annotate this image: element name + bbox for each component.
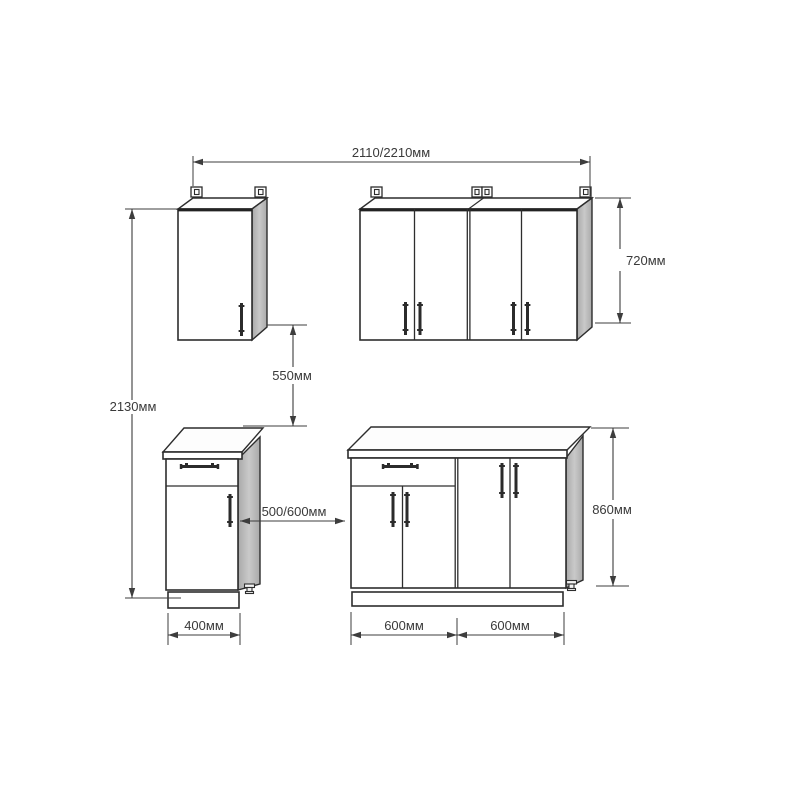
- arrowhead-down-icon: [129, 588, 135, 598]
- mounting-bracket: [482, 187, 492, 197]
- arrowhead-right-icon: [447, 632, 457, 638]
- dim-base-left-width: 600мм: [351, 612, 457, 645]
- dim-base-height: 860мм: [591, 428, 632, 586]
- dim-wall-cabinet-height: 720мм: [595, 198, 666, 323]
- cabinet-side-panel: [252, 198, 267, 340]
- mounting-bracket: [255, 187, 266, 197]
- plinth: [168, 592, 239, 608]
- arrowhead-right-icon: [554, 632, 564, 638]
- plinth: [352, 592, 563, 606]
- arrowhead-up-icon: [617, 198, 623, 208]
- arrowhead-right-icon: [230, 632, 240, 638]
- mounting-bracket: [371, 187, 382, 197]
- cabinet-front: [351, 458, 566, 588]
- arrowhead-left-icon: [457, 632, 467, 638]
- worktop-top-face: [348, 427, 590, 450]
- dim-label-overall-height: 2130мм: [110, 399, 157, 414]
- arrowhead-down-icon: [617, 313, 623, 323]
- arrowhead-left-icon: [193, 159, 203, 165]
- arrowhead-right-icon: [580, 159, 590, 165]
- arrowhead-up-icon: [610, 428, 616, 438]
- arrowhead-left-icon: [168, 632, 178, 638]
- dim-label-base-left-width: 600мм: [384, 618, 424, 633]
- dim-base-small-width: 400мм: [168, 613, 240, 645]
- cabinet-front: [360, 209, 577, 340]
- dim-total-width: 2110/2210мм: [193, 145, 590, 196]
- cabinet-front: [166, 459, 238, 590]
- adjustable-foot: [245, 584, 255, 594]
- dim-label-gap: 550мм: [272, 368, 312, 383]
- arrowhead-right-icon: [335, 518, 345, 524]
- dim-label-wall-height: 720мм: [626, 253, 666, 268]
- wall-cabinet-double: [360, 187, 592, 340]
- cabinet-side-panel: [577, 198, 592, 340]
- base-cabinet-small: [163, 428, 263, 608]
- mounting-bracket: [472, 187, 482, 197]
- dim-label-clearance: 500/600мм: [262, 504, 327, 519]
- dim-label-base-small-width: 400мм: [184, 618, 224, 633]
- wall-cabinet-single: [178, 187, 267, 340]
- arrowhead-left-icon: [351, 632, 361, 638]
- dim-wall-base-gap: 550мм: [243, 325, 312, 426]
- worktop-front-edge: [348, 450, 567, 458]
- worktop-front-edge: [163, 452, 242, 459]
- arrowhead-up-icon: [129, 209, 135, 219]
- cabinet-side-panel: [238, 437, 260, 590]
- arrowhead-down-icon: [290, 416, 296, 426]
- arrowhead-up-icon: [290, 325, 296, 335]
- dim-label-total-width: 2110/2210мм: [352, 145, 430, 160]
- kitchen-dimension-drawing: 2110/2210мм 720мм 2130мм 550мм 500/600м: [0, 0, 800, 800]
- mounting-bracket: [191, 187, 202, 197]
- arrowhead-down-icon: [610, 576, 616, 586]
- base-cabinet-double: [348, 427, 590, 606]
- dim-label-base-right-width: 600мм: [490, 618, 530, 633]
- dim-base-right-width: 600мм: [457, 612, 564, 645]
- drawing-canvas: 2110/2210мм 720мм 2130мм 550мм 500/600м: [0, 0, 800, 800]
- mounting-bracket: [580, 187, 591, 197]
- cabinet-side-panel: [566, 436, 583, 588]
- dim-label-base-height: 860мм: [592, 502, 632, 517]
